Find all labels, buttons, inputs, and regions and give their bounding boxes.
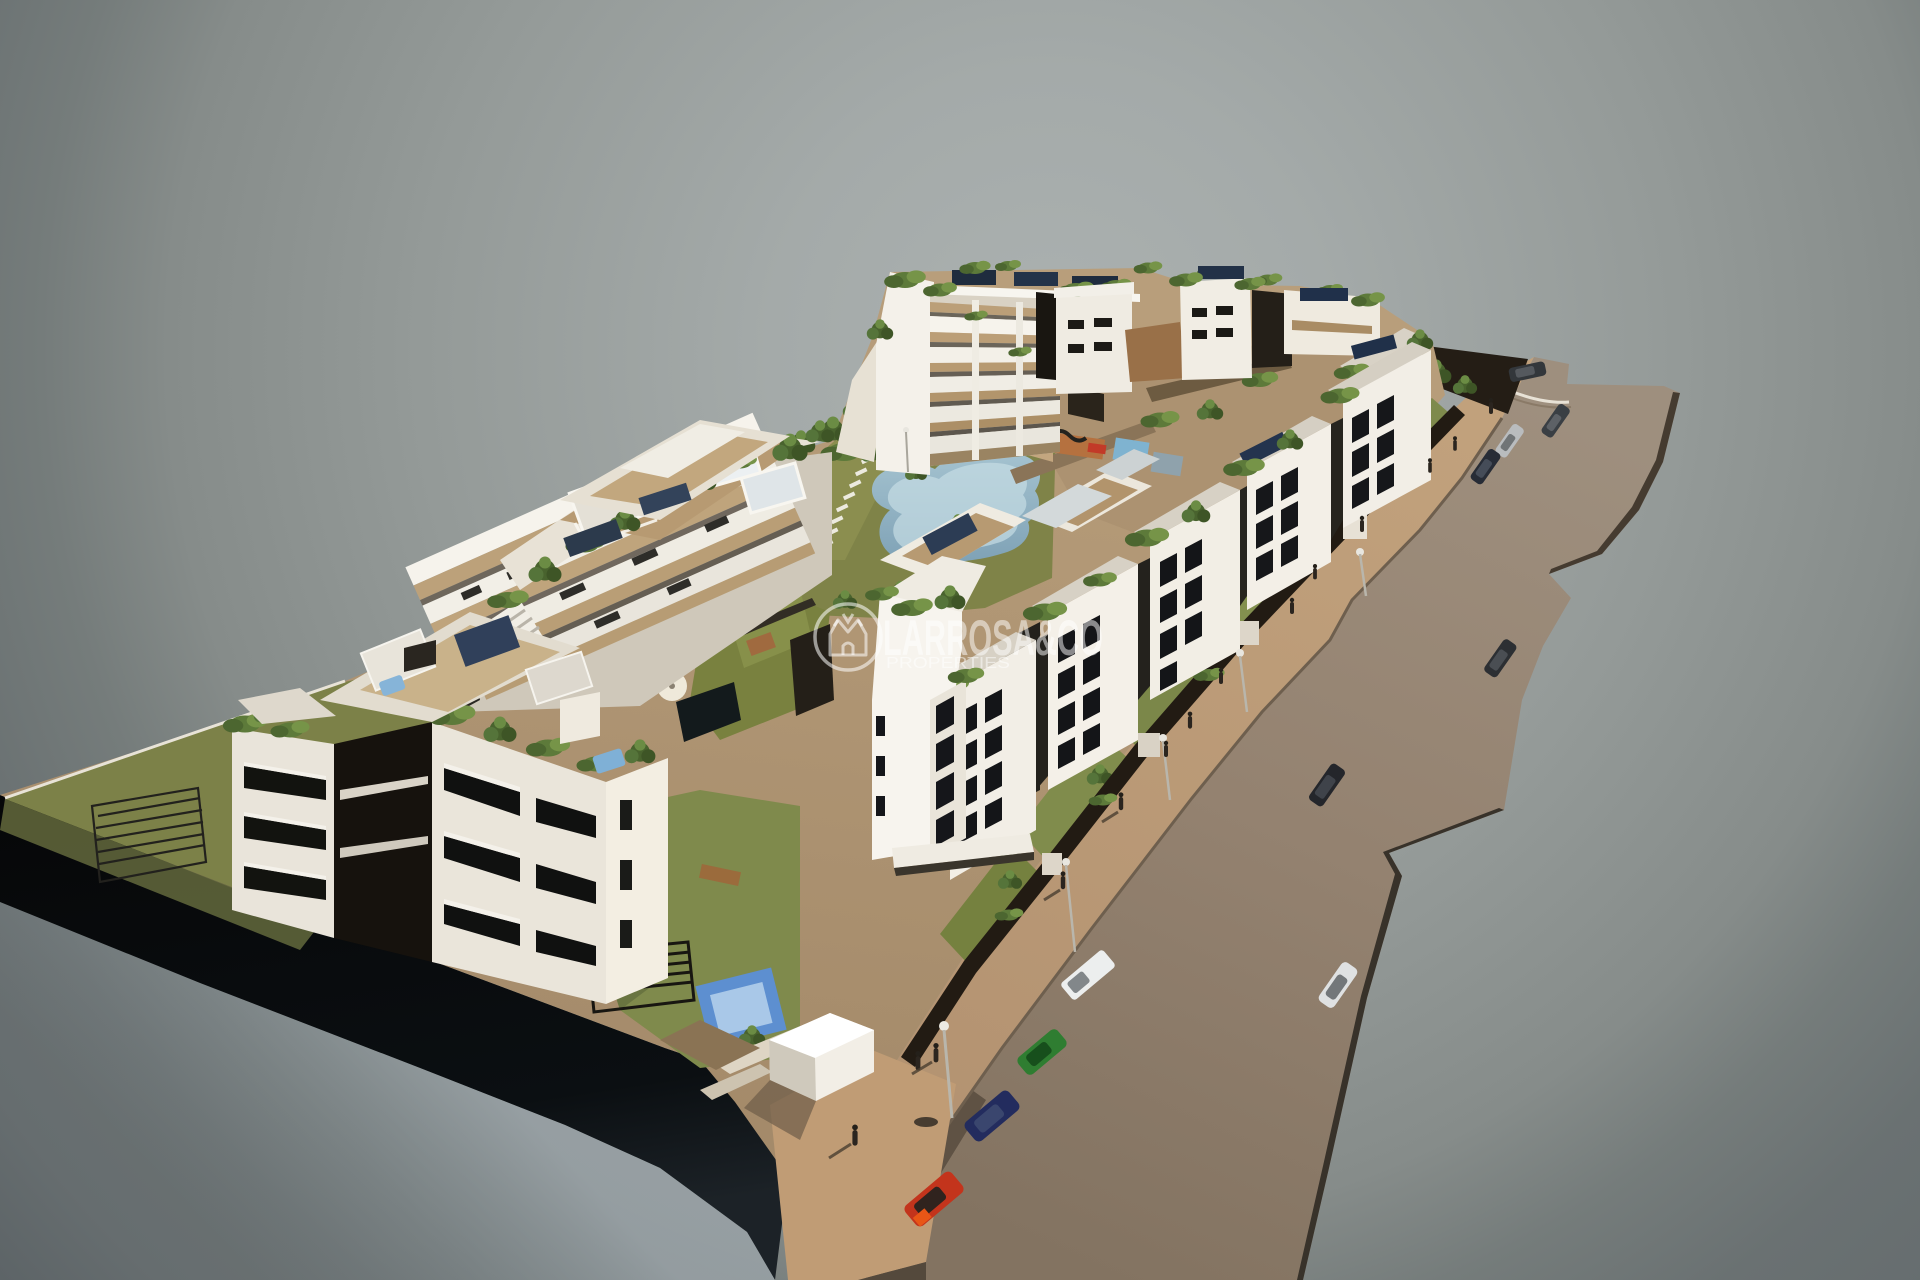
svg-text:PROPERTIES: PROPERTIES bbox=[886, 655, 1010, 672]
